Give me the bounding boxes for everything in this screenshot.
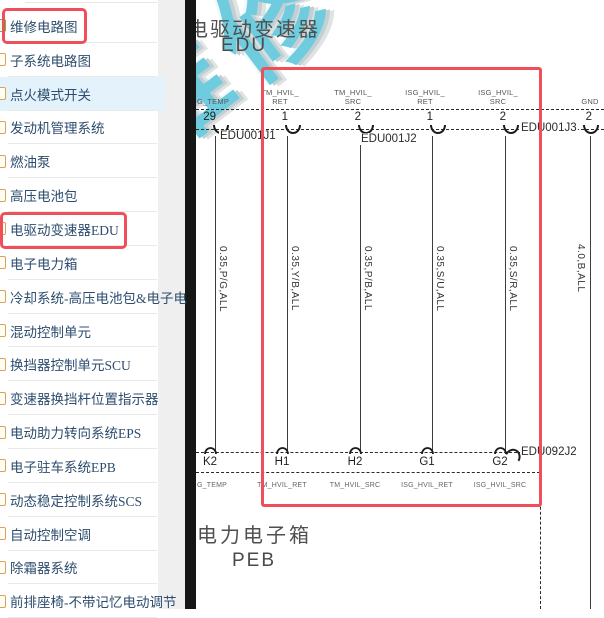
document-icon [0, 155, 6, 168]
system-list: 维修电路图 子系统电路图 点火模式开关 发动机管理系统 燃油泵 高压电池包 电驱… [0, 9, 185, 618]
document-icon [0, 324, 6, 337]
document-icon [0, 561, 6, 574]
wire-label: 4.0,B,ALL [575, 244, 586, 292]
sidebar-item-cooling-system[interactable]: 冷却系统-高压电池包&电子电 [0, 280, 165, 314]
document-icon [0, 121, 6, 134]
document-icon [0, 493, 6, 506]
pin-arc-icon [204, 446, 217, 455]
list-separator [25, 2, 157, 3]
sidebar-item-fuel-pump[interactable]: 燃油泵 [0, 144, 165, 178]
document-icon [0, 392, 6, 405]
sidebar-item-defroster-system[interactable]: 除霜器系统 [0, 551, 165, 585]
document-icon [0, 290, 6, 303]
highlight-box-repair-circuit [2, 8, 87, 44]
wire-label: 0.35,P/G,ALL [217, 246, 228, 312]
sidebar-item-scs[interactable]: 动态稳定控制系统SCS [0, 483, 165, 517]
document-icon [0, 358, 6, 371]
document-icon [0, 87, 6, 100]
sidebar-item-eps[interactable]: 电动助力转向系统EPS [0, 415, 165, 449]
sidebar-item-hv-battery-pack[interactable]: 高压电池包 [0, 178, 165, 212]
document-icon [0, 527, 6, 540]
signal-label-top: GND [575, 98, 604, 107]
highlight-box-diagram [261, 67, 542, 507]
wire-line [590, 136, 591, 609]
bottom-component-title: 电力电子箱 [197, 519, 312, 548]
document-icon [0, 426, 6, 439]
sidebar-item-engine-management[interactable]: 发动机管理系统 [0, 111, 165, 145]
sidebar-item-auto-climate-control[interactable]: 自动控制空调 [0, 517, 165, 551]
highlight-box-edu [0, 212, 127, 249]
pin-arc-icon [583, 124, 599, 135]
sidebar-item-hybrid-control-unit[interactable]: 混动控制单元 [0, 314, 165, 348]
top-component-abbr: EDU [221, 35, 267, 57]
sidebar-item-shifter-control-unit-scu[interactable]: 换挡器控制单元SCU [0, 347, 165, 381]
sidebar-item-gear-lever-position-indicator[interactable]: 变速器换挡杆位置指示器 [0, 381, 165, 415]
bottom-pin-label: K2 [195, 456, 225, 468]
sidebar-item-subsystem-circuit-diagram[interactable]: 子系统电路图 [0, 43, 165, 77]
sidebar-item-ignition-mode-switch[interactable]: 点火模式开关 [0, 77, 165, 111]
sidebar-panel: 维修电路图 子系统电路图 点火模式开关 发动机管理系统 燃油泵 高压电池包 电驱… [0, 0, 185, 609]
document-icon [0, 256, 6, 269]
document-icon [0, 459, 6, 472]
sidebar-item-front-seat-no-memory[interactable]: 前排座椅-不带记忆电动调节 [0, 584, 165, 618]
bottom-component-abbr: PEB [232, 550, 276, 572]
document-icon [0, 53, 6, 66]
sidebar-item-epb[interactable]: 电子驻车系统EPB [0, 449, 165, 483]
document-icon [0, 595, 6, 608]
document-icon [0, 189, 6, 202]
sidebar-item-power-electronics-box[interactable]: 电子电力箱 [0, 246, 165, 280]
